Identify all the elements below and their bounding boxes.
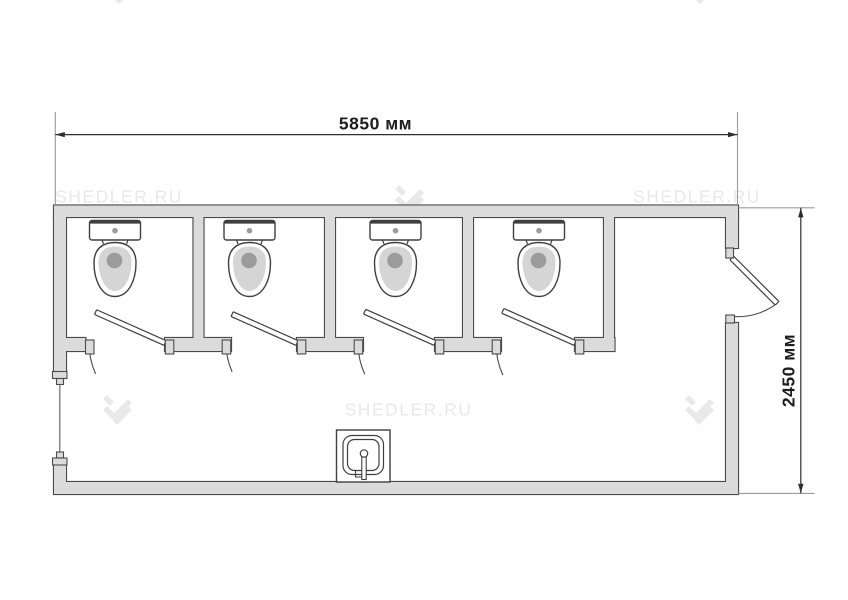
door-leaf [95, 310, 167, 346]
door-jamb [297, 340, 306, 354]
door-jamb [575, 340, 584, 354]
door-leaf [364, 309, 436, 345]
door-leaf [502, 308, 576, 345]
toilet-4 [514, 221, 565, 297]
watermark-logo-icon [105, 397, 130, 423]
arrow-left-icon [55, 132, 64, 137]
door-jamb [726, 315, 735, 323]
door-leaf [730, 256, 779, 305]
door-leaf [231, 312, 298, 346]
toilet-2 [224, 221, 275, 297]
window-frame-neck [57, 379, 64, 385]
stall-door-4 [496, 308, 576, 375]
window-frame-neck [57, 452, 64, 458]
door-jamb [726, 248, 734, 258]
door-jamb [354, 340, 363, 354]
toilet-3 [370, 221, 421, 297]
arrow-down-icon [798, 484, 803, 493]
height-dimension-label: 2450 мм [779, 334, 799, 407]
watermark-text: SHEDLER.RU [55, 187, 183, 207]
faucet-stem [362, 457, 366, 480]
dimension-height: 2450 мм [739, 208, 815, 494]
door-jamb [492, 340, 501, 354]
arrow-right-icon [728, 132, 737, 137]
door-swing-arc [734, 303, 777, 316]
door-jamb [435, 340, 444, 354]
floor-plan-canvas: SHEDLER.RU SHEDLER.RU SHEDLER.RU [0, 0, 848, 600]
watermark-logo-icon [688, 0, 713, 2]
door-jamb [165, 340, 174, 354]
washbasin [337, 430, 391, 482]
watermark-logo-icon [687, 397, 712, 423]
window-left-wall [53, 372, 68, 466]
watermark-logo-icon [107, 0, 132, 2]
window-frame-cap [53, 372, 68, 379]
door-jamb [222, 340, 231, 354]
stall-door-1 [89, 310, 166, 374]
door-jamb [86, 340, 95, 354]
stall-door-2 [226, 312, 298, 372]
faucet-knob [360, 450, 367, 457]
watermark-text: SHEDLER.RU [633, 187, 761, 207]
floor-plan-page: SHEDLER.RU SHEDLER.RU SHEDLER.RU [0, 0, 848, 600]
entrance-door [730, 256, 779, 316]
watermark-text: SHEDLER.RU [345, 400, 473, 420]
arrow-up-icon [798, 208, 803, 217]
stall-door-3 [358, 309, 436, 374]
window-frame-cap [53, 458, 68, 465]
toilet-1 [90, 221, 141, 297]
width-dimension-label: 5850 мм [339, 114, 412, 134]
